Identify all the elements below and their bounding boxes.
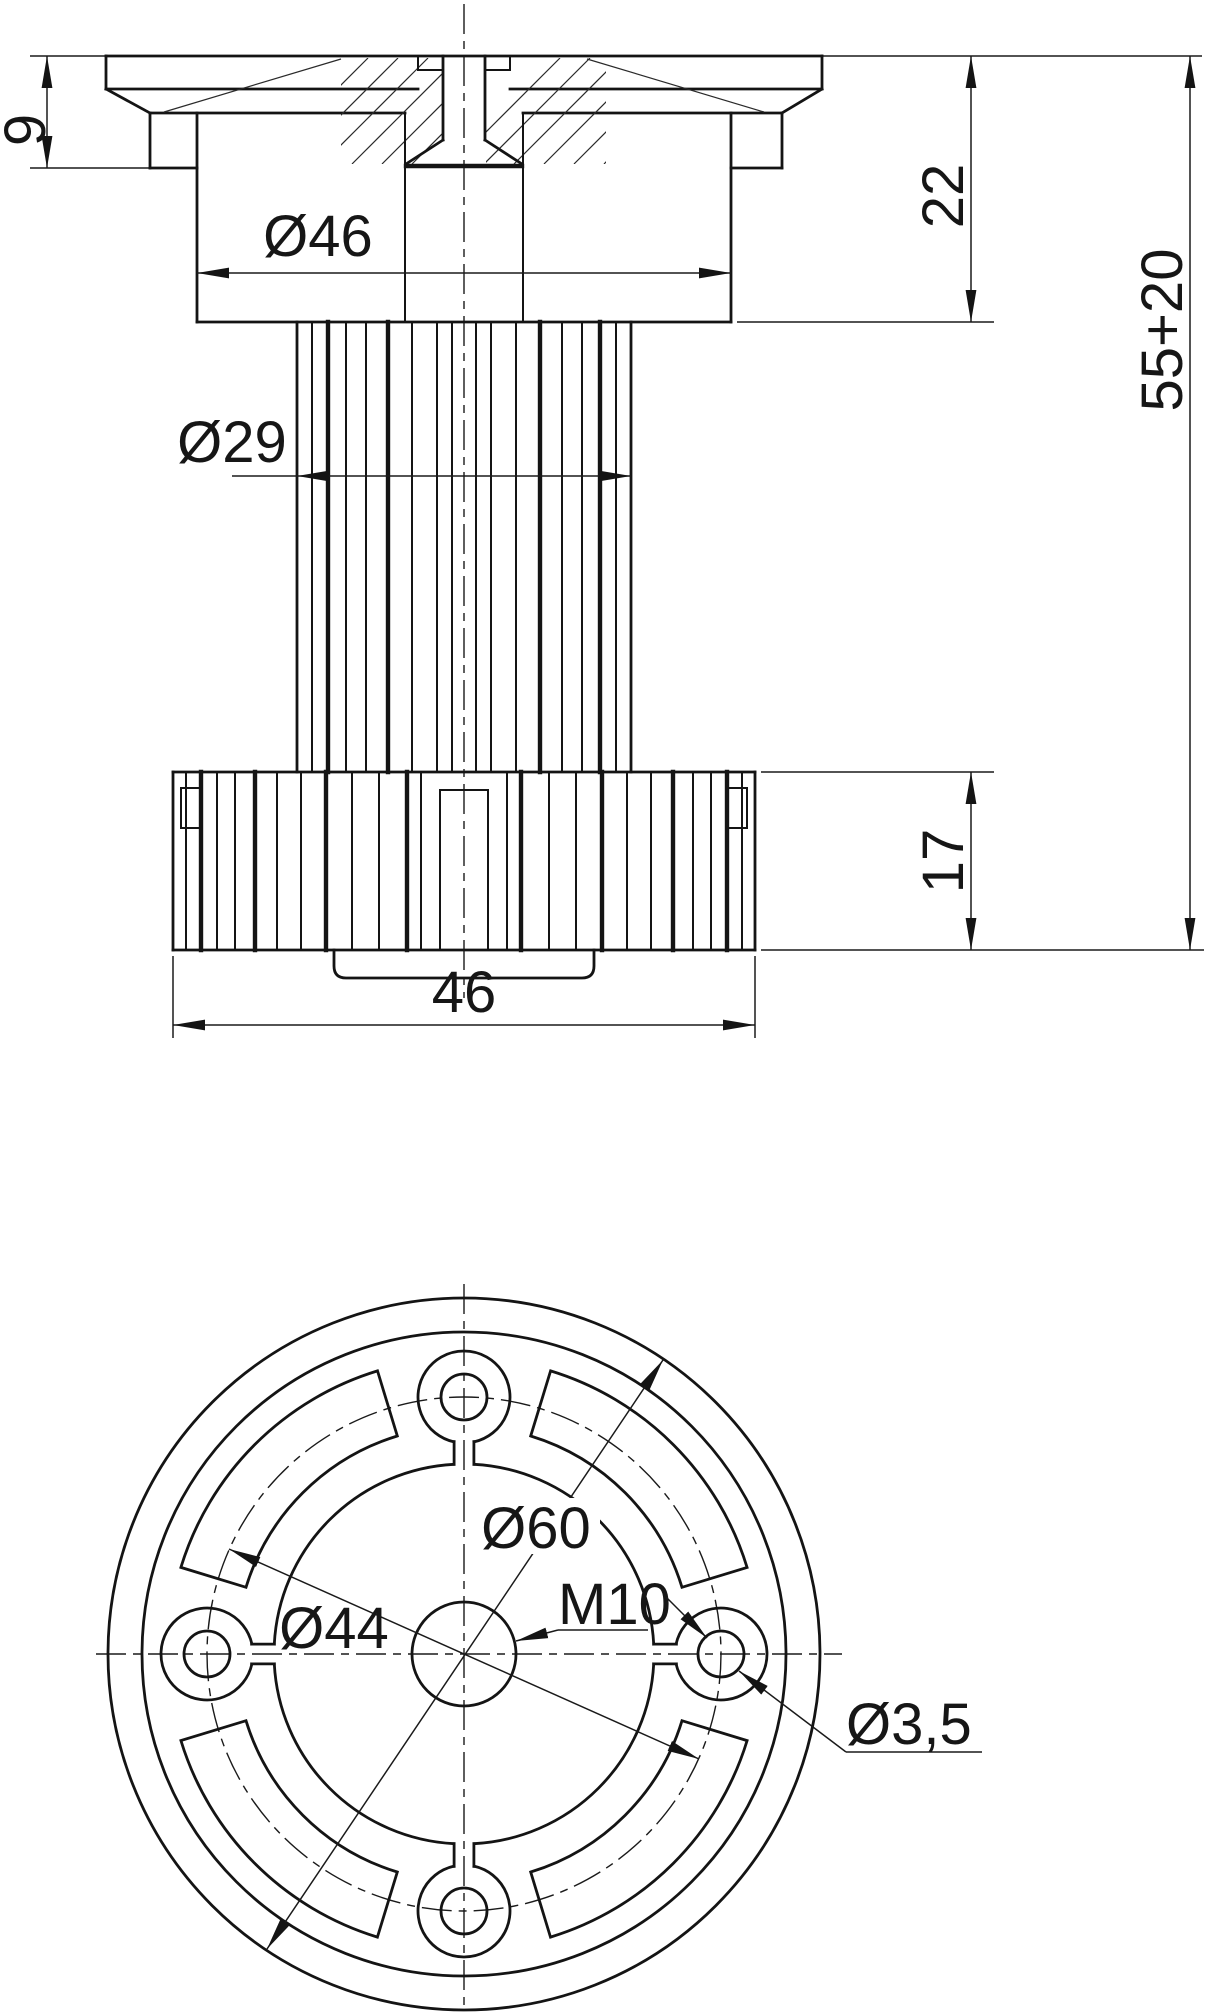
front-view: 9 Ø46 22 55+20 Ø29 17 46 <box>0 4 1204 1038</box>
dim-column-diameter: Ø29 <box>177 410 287 475</box>
bottom-view: Ø60 Ø44 M10 Ø3,5 <box>96 1284 982 2011</box>
dim-flange-height: 17 <box>911 829 976 894</box>
dim-flange-width: 46 <box>432 960 497 1025</box>
drawing-page: 9 Ø46 22 55+20 Ø29 17 46 <box>0 0 1211 2013</box>
technical-drawing: 9 Ø46 22 55+20 Ø29 17 46 <box>0 0 1211 2013</box>
hatching-left <box>262 58 518 164</box>
dim-outer-diameter: Ø60 <box>481 1496 591 1561</box>
dim-total-height: 55+20 <box>1130 249 1195 412</box>
dim-bolt-circle: Ø44 <box>279 1596 389 1661</box>
front-dimensions: 9 Ø46 22 55+20 Ø29 17 46 <box>0 56 1195 1025</box>
dim-plate-thickness: 9 <box>0 114 58 146</box>
dim-housing-height: 22 <box>911 164 976 229</box>
hatching-right <box>454 58 710 164</box>
dim-housing-diameter: Ø46 <box>263 204 373 269</box>
dim-screw-hole: Ø3,5 <box>846 1692 972 1757</box>
dim-thread: M10 <box>558 1572 671 1637</box>
